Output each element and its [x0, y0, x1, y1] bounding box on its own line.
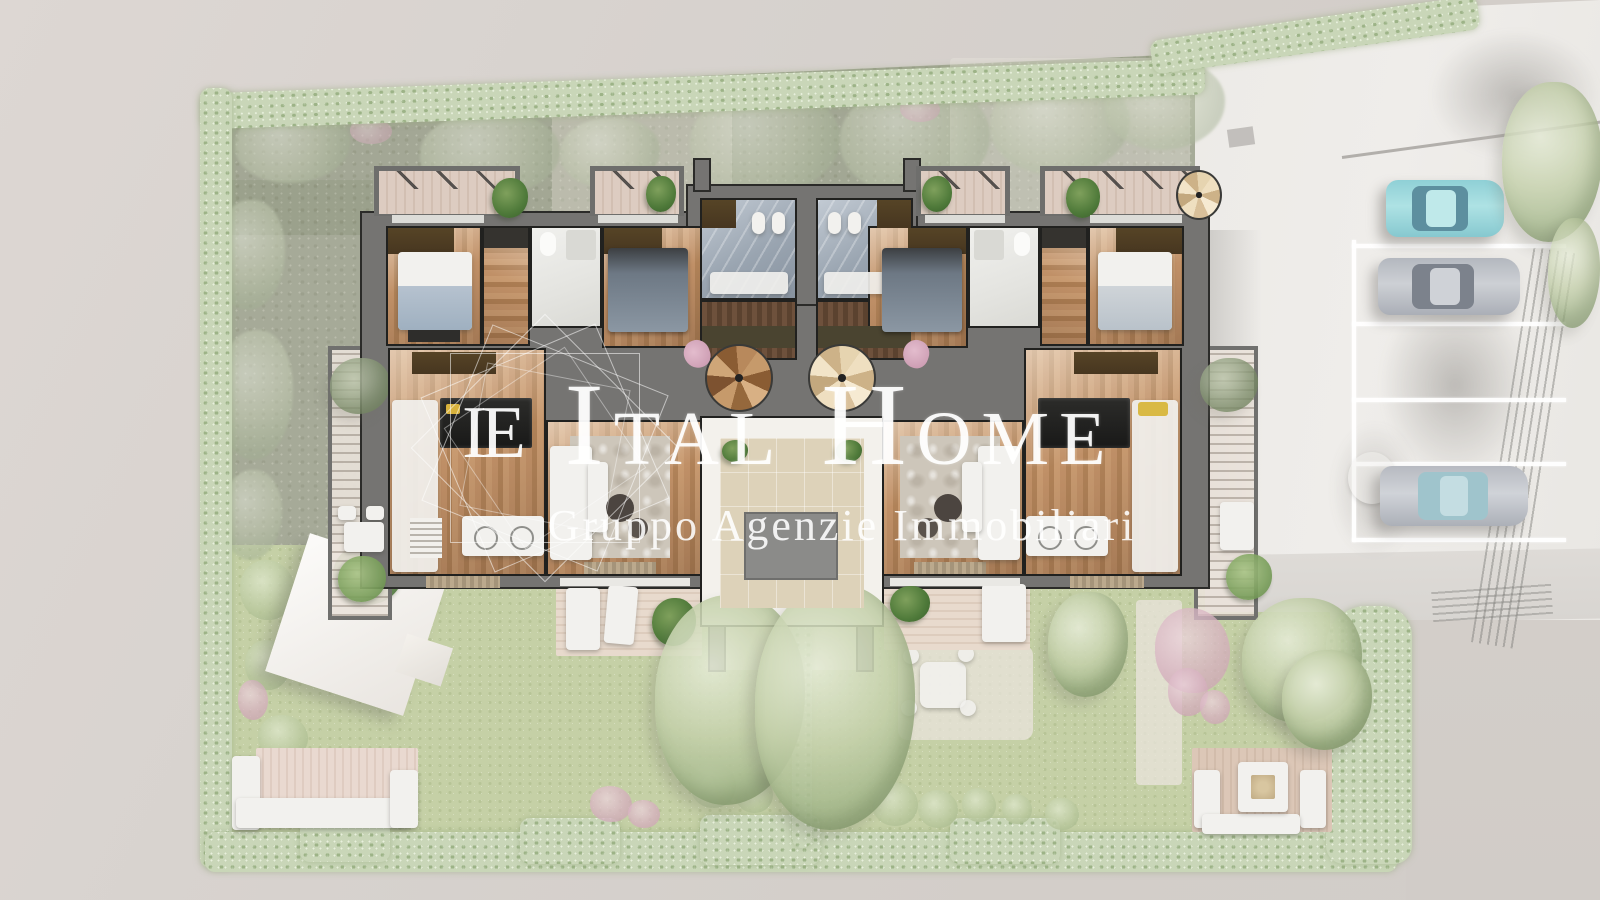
- car-roof: [1426, 190, 1456, 227]
- bed-bench: [408, 330, 460, 342]
- toilet: [772, 212, 785, 234]
- desk: [484, 228, 528, 248]
- bush: [962, 788, 996, 822]
- watermark-letters: OME: [917, 401, 1116, 477]
- flower-bush: [1200, 690, 1230, 724]
- flower-bush: [628, 800, 660, 828]
- watermark-letters: TAL: [614, 401, 786, 477]
- background-patch: [1406, 620, 1600, 900]
- daybed: [982, 584, 1026, 642]
- outdoor-sofa: [1300, 770, 1326, 828]
- window: [598, 215, 678, 223]
- bush: [1045, 798, 1079, 830]
- bed: [882, 248, 962, 332]
- bed: [608, 248, 688, 332]
- wardrobe: [388, 228, 454, 254]
- wardrobe: [702, 200, 736, 228]
- toilet: [540, 232, 556, 256]
- window: [392, 215, 484, 223]
- bathtub: [710, 272, 788, 294]
- logo-monogram: IE: [462, 396, 520, 470]
- exterior-spiral-stair: [1176, 170, 1222, 220]
- toilet: [828, 212, 841, 234]
- wardrobe: [877, 200, 911, 228]
- sun-lounger: [604, 585, 639, 645]
- sun-lounger: [566, 588, 600, 650]
- terrace-bench: [1220, 502, 1254, 550]
- car-teal: [1386, 180, 1504, 237]
- shower: [974, 230, 1004, 260]
- bush: [918, 790, 958, 828]
- fire-table-top: [1251, 775, 1275, 799]
- watermark-word: HOME: [821, 366, 1115, 484]
- towel-rack: [410, 518, 442, 558]
- sliding-door: [560, 578, 690, 586]
- wall-stub: [695, 160, 709, 190]
- hedge-bump: [950, 818, 1060, 864]
- bed-blanket: [1098, 286, 1172, 330]
- hedge-bump: [520, 818, 620, 864]
- watermark-letter: H: [821, 366, 916, 484]
- bed: [1098, 252, 1172, 330]
- toilet: [1014, 232, 1030, 256]
- outdoor-sofa: [1202, 814, 1300, 834]
- doormat: [1070, 576, 1144, 588]
- outdoor-sofa: [236, 798, 410, 828]
- car-roof: [1430, 268, 1460, 305]
- car-roof: [1440, 476, 1468, 516]
- garden-chair: [960, 700, 976, 716]
- toilet: [848, 212, 861, 234]
- shower: [566, 230, 596, 260]
- car-gray-upper: [1378, 258, 1520, 315]
- watermark-word: ITAL: [564, 366, 785, 484]
- hedge-border-left: [200, 88, 232, 868]
- terrace-table: [344, 522, 384, 552]
- flower-bush: [238, 680, 268, 720]
- outdoor-sofa: [390, 770, 418, 828]
- parking-line: [1352, 398, 1566, 402]
- car-gray-lower: [1380, 466, 1528, 526]
- desk: [1042, 228, 1086, 248]
- wardrobe: [1116, 228, 1182, 254]
- bed-blanket: [398, 286, 472, 330]
- window: [925, 215, 1005, 223]
- kitchen-cabinets: [1132, 400, 1178, 572]
- toilet: [752, 212, 765, 234]
- floor-plan-render: IE ITAL HOME Gruppo Agenzie Immobiliari: [0, 0, 1600, 900]
- parking-line: [1352, 244, 1566, 248]
- garden-table: [920, 662, 966, 708]
- watermark-letter: I: [564, 366, 613, 484]
- window: [1090, 215, 1182, 223]
- watermark-subtitle: Gruppo Agenzie Immobiliari: [548, 500, 1137, 551]
- terrace-chair: [338, 506, 356, 520]
- bush: [1002, 794, 1032, 824]
- bed: [398, 252, 472, 330]
- flower-bush: [590, 786, 632, 822]
- pavement-mark: [1227, 126, 1255, 147]
- tree: [1502, 82, 1600, 242]
- parking-line: [1352, 538, 1566, 542]
- doormat: [426, 576, 500, 588]
- sofa-yellow-pillows: [1138, 402, 1168, 416]
- watermark-title: ITAL HOME: [564, 366, 1115, 484]
- doormat: [914, 562, 986, 574]
- terrace-chair: [366, 506, 384, 520]
- parking-line: [1352, 322, 1566, 326]
- sliding-door: [890, 578, 1020, 586]
